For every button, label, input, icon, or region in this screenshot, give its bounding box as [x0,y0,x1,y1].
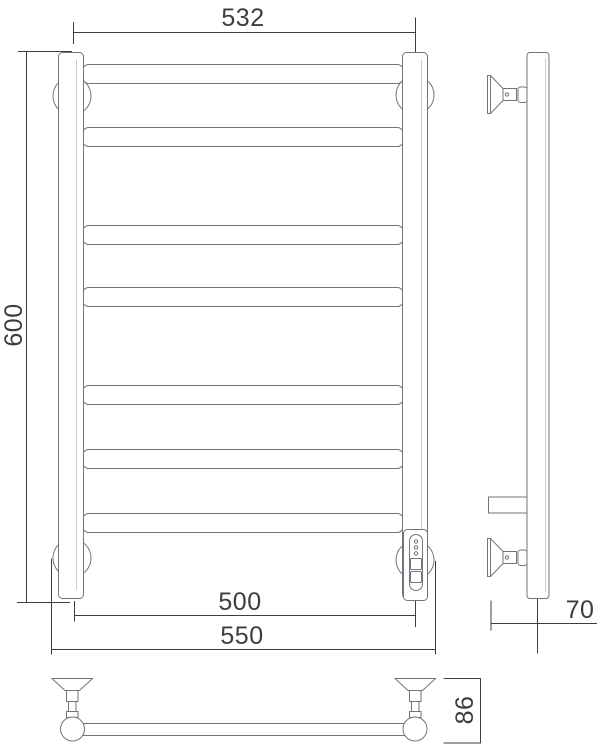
rung [83,450,403,469]
side-wall-bracket-bottom [488,539,528,577]
rung [83,128,403,147]
rung [83,65,403,84]
rung [83,386,403,405]
dim-label-inner-width: 500 [218,588,261,616]
dim-label-bracket-depth: 86 [451,696,479,725]
rungs [83,65,403,533]
side-element-housing [489,497,528,513]
side-wall-bracket-top [488,76,528,114]
dim-bracket-depth: 86 [444,679,482,744]
bottom-view [52,679,436,742]
bracket-wall-plate [488,539,504,577]
rail-tube [72,724,416,736]
front-view [53,53,434,601]
controller [404,530,428,601]
technical-drawing-page: 532 600 500 550 70 [0,0,603,750]
towel-rail-drawing: 532 600 500 550 70 [0,0,603,750]
rung [83,514,403,533]
bracket-wall-plate [488,76,504,114]
dim-label-overall-width: 550 [220,622,263,650]
dim-wall-offset: 70 [491,596,597,654]
dimensions: 532 600 500 550 70 [0,4,597,743]
dim-label-height: 600 [0,303,28,346]
left-stile [59,53,84,599]
dim-top-width: 532 [73,4,416,52]
bracket-collar [518,550,527,566]
bracket-collar [518,87,527,103]
dim-label-wall-offset: 70 [566,596,595,624]
rung [83,288,403,307]
rung [83,226,403,245]
right-stile [403,53,428,599]
side-view [488,53,550,599]
dim-label-top-width: 532 [221,4,264,32]
